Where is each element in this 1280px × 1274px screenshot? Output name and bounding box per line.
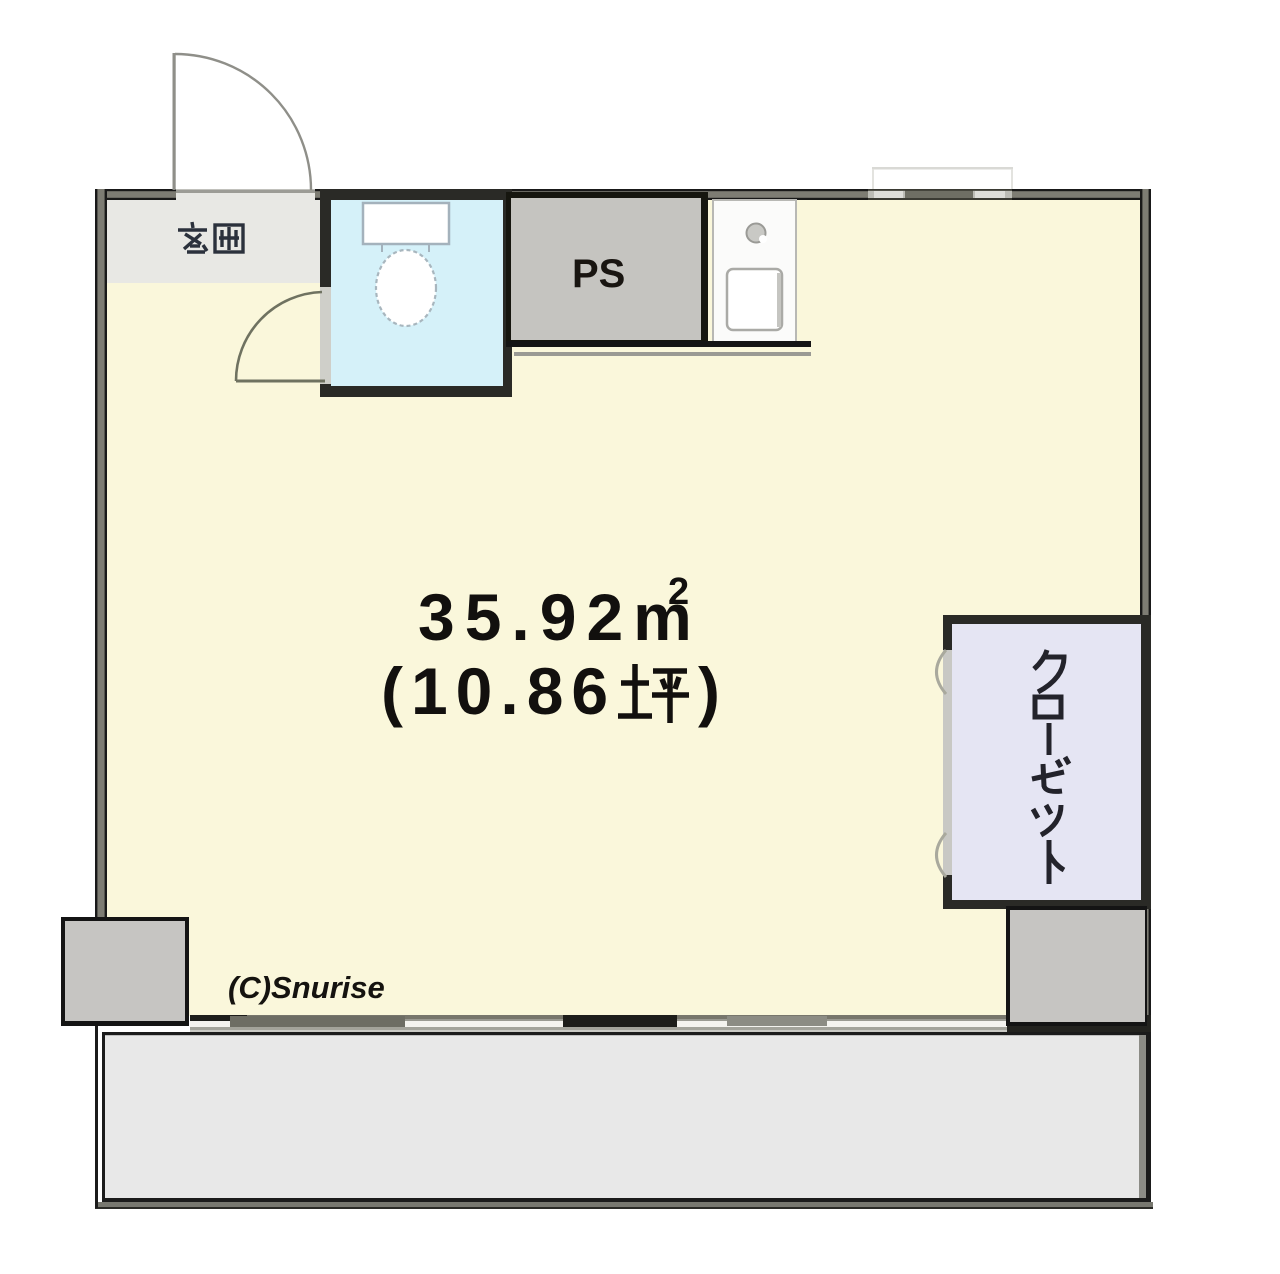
svg-text:): ) <box>698 654 720 728</box>
svg-text:(C)Snurise: (C)Snurise <box>228 970 385 1005</box>
svg-text:35.92m: 35.92m <box>418 580 702 654</box>
svg-text:PS: PS <box>572 252 625 296</box>
svg-text:2: 2 <box>668 571 689 613</box>
svg-text:(10.86: (10.86 <box>381 654 616 728</box>
